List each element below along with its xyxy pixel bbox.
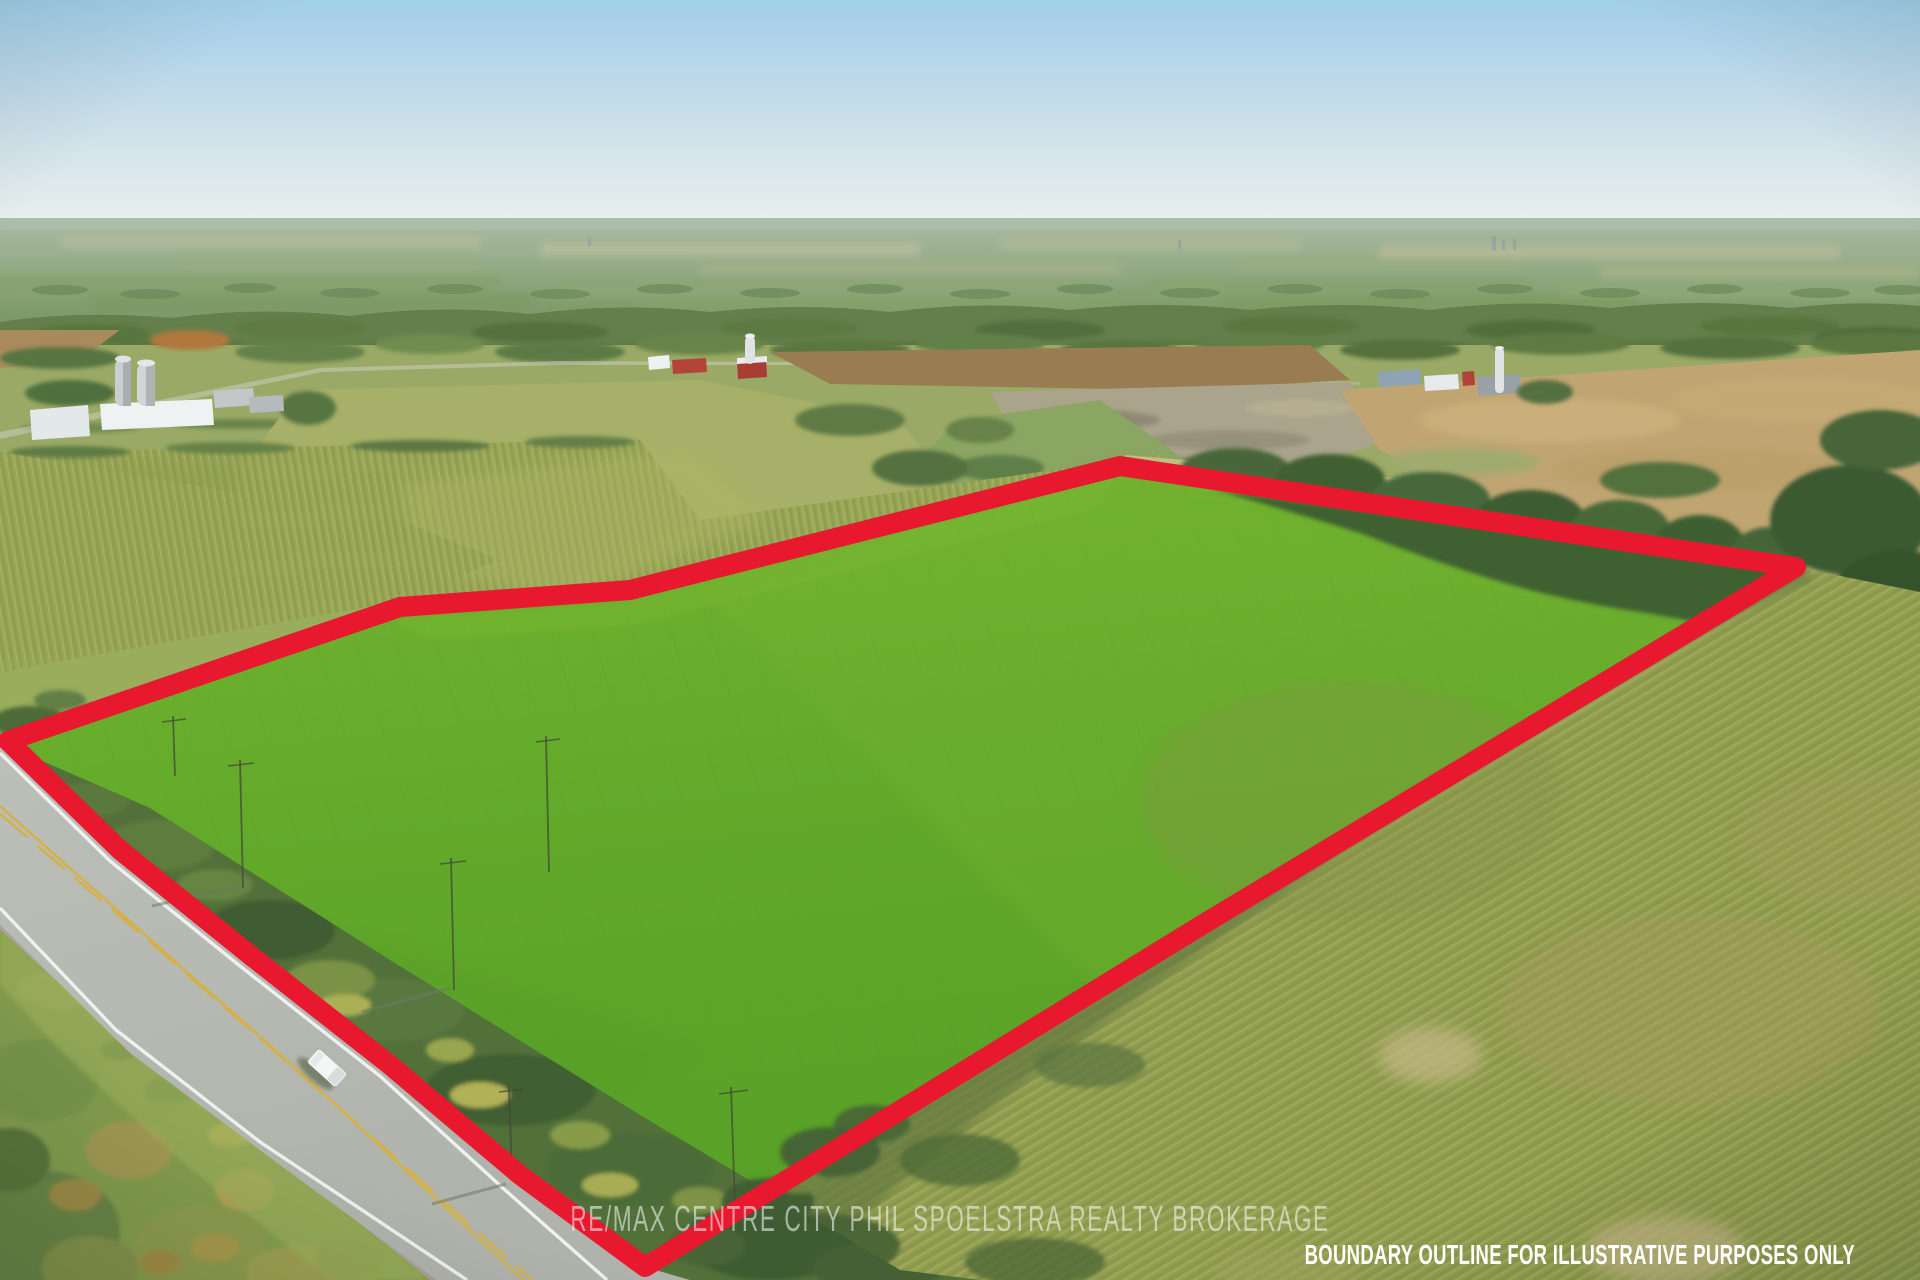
svg-text:RE/MAX CENTRE CITY PHIL SPOELS: RE/MAX CENTRE CITY PHIL SPOELSTRA REALTY… — [570, 1200, 1329, 1240]
svg-text:BOUNDARY OUTLINE FOR ILLUSTRAT: BOUNDARY OUTLINE FOR ILLUSTRATIVE PURPOS… — [1305, 1240, 1855, 1271]
